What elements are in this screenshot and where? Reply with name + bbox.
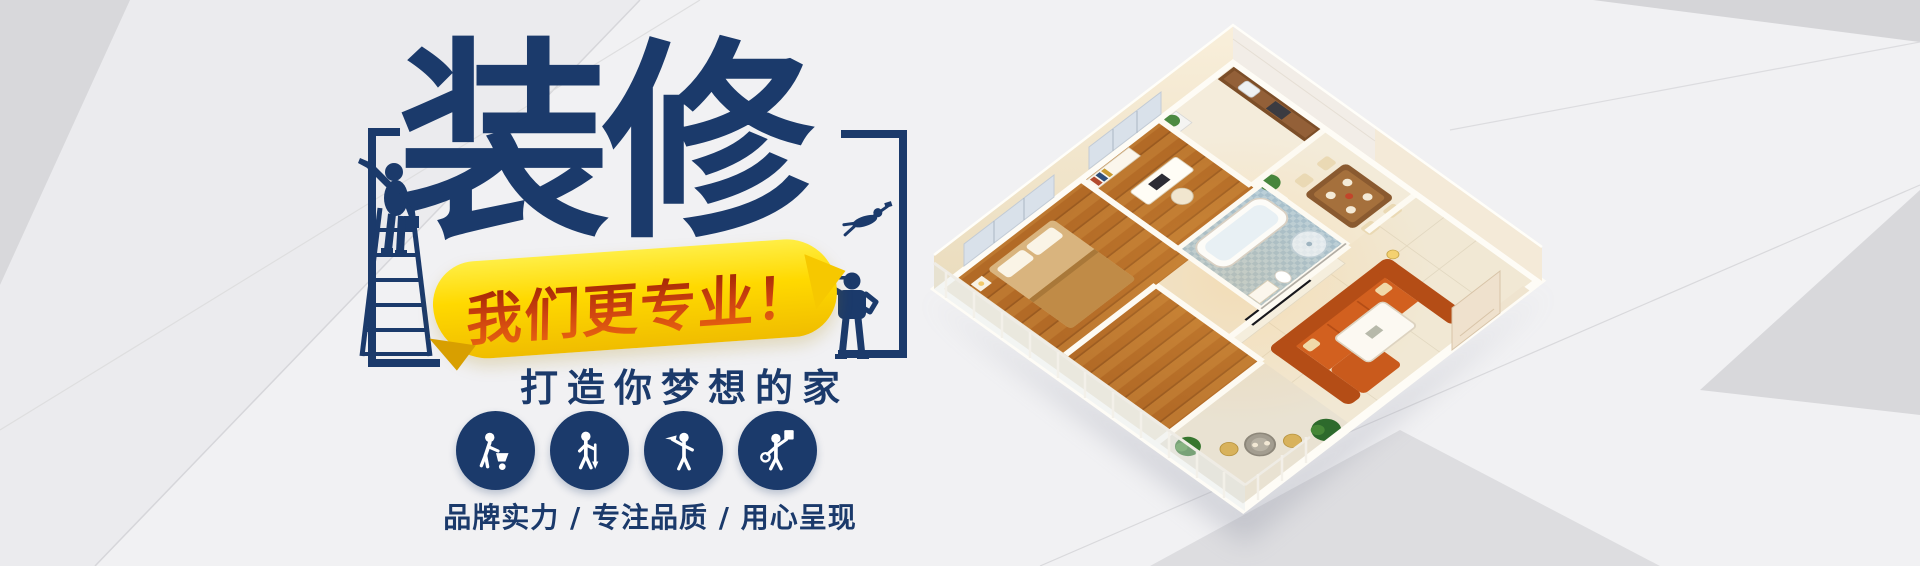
leaping-worker-icon	[838, 198, 898, 240]
left-bracket-top	[368, 128, 400, 136]
banner-tagline: 品牌实力 / 专注品质 / 用心呈现	[420, 496, 880, 536]
worker-shovel-icon	[550, 411, 629, 490]
worker-icon-row	[456, 411, 817, 490]
worker-wheelbarrow-icon	[456, 411, 535, 490]
worker-pickaxe-icon	[644, 411, 723, 490]
banner-subtitle: 打造你梦想的家	[512, 357, 857, 412]
banner: 装修 我们更专业！ 打造你梦想的家	[0, 0, 1920, 566]
right-bracket-top	[841, 130, 907, 138]
poster-copy: 装修 我们更专业！ 打造你梦想的家	[0, 0, 1920, 566]
banner-title: 装修	[398, 30, 838, 259]
right-bracket	[899, 130, 907, 358]
worker-paint-bucket-icon	[738, 411, 817, 490]
